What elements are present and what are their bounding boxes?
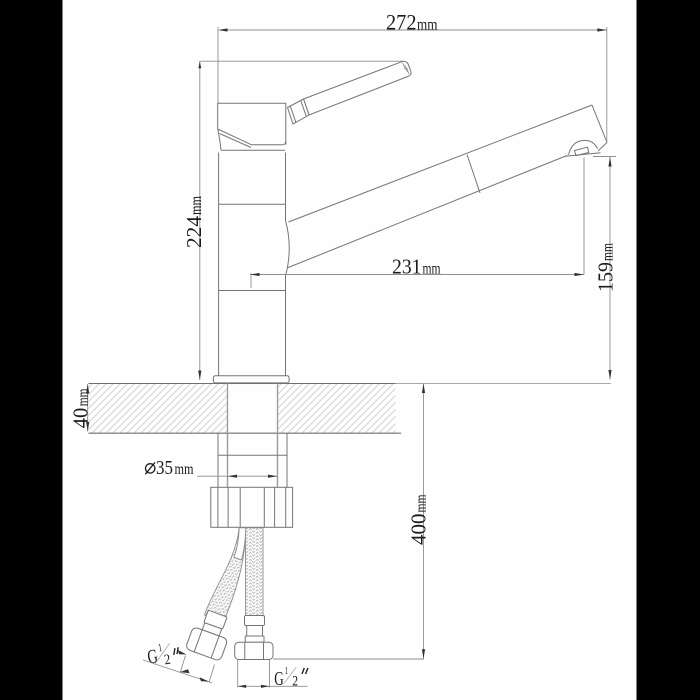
svg-text:400: 400: [406, 514, 430, 546]
svg-text:1: 1: [285, 665, 288, 677]
svg-text:mm: mm: [413, 494, 429, 512]
svg-text:224: 224: [182, 216, 206, 248]
svg-text:mm: mm: [76, 388, 92, 406]
svg-text:G: G: [274, 669, 284, 690]
svg-text:mm: mm: [175, 461, 194, 478]
svg-text:35: 35: [156, 458, 173, 479]
svg-text:159: 159: [594, 262, 618, 292]
svg-text:mm: mm: [188, 196, 205, 215]
svg-text:2: 2: [292, 673, 298, 689]
svg-text:40: 40: [69, 408, 93, 429]
svg-text:272: 272: [386, 10, 417, 35]
svg-text:231: 231: [392, 255, 422, 279]
svg-text:mm: mm: [417, 17, 438, 34]
svg-text:mm: mm: [423, 261, 441, 278]
svg-text:mm: mm: [600, 243, 617, 261]
